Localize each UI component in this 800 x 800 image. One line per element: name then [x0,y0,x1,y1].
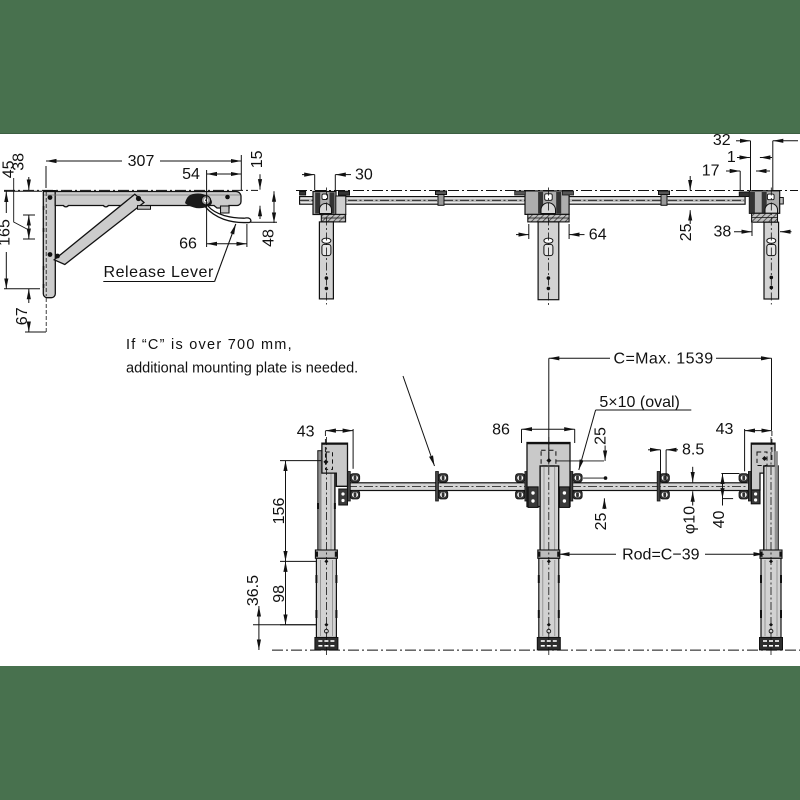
svg-text:C=Max. 1539: C=Max. 1539 [613,350,713,367]
svg-text:38: 38 [714,223,732,240]
svg-text:67: 67 [14,307,31,325]
svg-text:43: 43 [297,423,315,440]
svg-text:54: 54 [182,166,200,183]
svg-text:If “C” is over 700 mm,: If “C” is over 700 mm, [126,337,293,353]
svg-text:30: 30 [355,167,373,184]
svg-text:32: 32 [713,132,731,149]
svg-text:86: 86 [492,421,510,438]
svg-text:Release Lever: Release Lever [104,264,214,281]
svg-text:1: 1 [727,149,736,166]
svg-text:48: 48 [261,229,278,247]
svg-text:5×10 (oval): 5×10 (oval) [599,394,680,411]
svg-text:307: 307 [128,153,155,170]
svg-text:25: 25 [593,513,610,531]
svg-text:98: 98 [271,585,288,603]
svg-text:40: 40 [711,511,728,529]
svg-text:additional mounting plate is n: additional mounting plate is needed. [126,361,358,377]
svg-text:156: 156 [271,498,288,525]
svg-text:165: 165 [0,219,13,246]
svg-text:36.5: 36.5 [245,575,262,606]
svg-text:43: 43 [716,421,734,438]
svg-text:15: 15 [249,150,266,168]
svg-text:64: 64 [589,227,607,244]
svg-text:17: 17 [702,163,720,180]
svg-text:38: 38 [11,153,28,171]
svg-text:φ10: φ10 [682,506,699,534]
svg-text:66: 66 [179,236,197,253]
svg-text:25: 25 [678,223,695,241]
svg-text:8.5: 8.5 [682,441,704,458]
svg-text:Rod=C−39: Rod=C−39 [622,547,699,564]
svg-text:25: 25 [593,427,610,445]
